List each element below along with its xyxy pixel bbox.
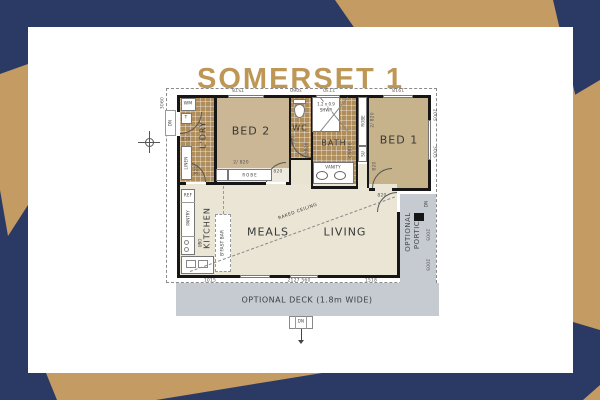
wall-wc-bottom — [289, 158, 313, 160]
dim-left-1: 3060 — [161, 97, 166, 109]
meals-label: MEALS — [247, 226, 289, 239]
portico-dn-label: DN — [424, 201, 429, 207]
bench-divider-2 — [181, 236, 195, 237]
cooktop-burner-2 — [184, 247, 189, 252]
dim-bottom-1: 1015 — [204, 279, 216, 284]
wc-label: WC — [292, 124, 308, 133]
deck-steps-dn-label: DN — [298, 319, 304, 324]
bed2-label: BED 2 — [232, 125, 270, 138]
bench-divider-1 — [181, 202, 195, 203]
washing-machine-label: WM — [184, 102, 193, 107]
cavity-slider-left: CS820 — [305, 142, 310, 158]
crosshair-circle — [145, 138, 154, 147]
deck-step-line-2 — [306, 316, 307, 329]
door-820-bed1: 820 — [373, 161, 378, 170]
bed2-robe-label: ROBE — [242, 173, 257, 178]
wall-left-upper — [177, 95, 180, 112]
deck-step-line-1 — [295, 316, 296, 329]
shower-size-label: 1.2 x 0.9 — [317, 102, 335, 107]
robe-2x820-bed1: 2/ 820 — [371, 112, 376, 128]
bfast-bar-label: B'FAST BAR — [221, 230, 226, 256]
laundry-tub-label: T — [185, 116, 188, 121]
portico-word1: OPTIONAL — [404, 212, 412, 252]
door-820-laundry-kitchen: 820 — [195, 165, 200, 174]
cavity-slider-right: CS820 — [349, 142, 354, 158]
wall-bath-bottom — [311, 186, 358, 189]
cooktop-burner-1 — [184, 240, 189, 245]
shelf-unit-label: SU — [361, 151, 366, 156]
bed1-entry-floor — [358, 164, 367, 186]
dim-right-1: 2005 — [432, 109, 437, 121]
pantry-label: PANTRY — [186, 210, 191, 225]
shower-label: SHWR — [320, 108, 332, 113]
bath-label: BATH — [321, 139, 346, 148]
wall-living-right — [397, 212, 400, 278]
bed2-robe-sw-box — [216, 169, 228, 181]
robe-2x820-bed2: 2/ 820 — [233, 161, 249, 166]
wall-robe-bed1 — [367, 95, 369, 188]
vanity-label: VANITY — [325, 165, 340, 170]
page-background: SOMERSET 1 WM T LINEN — [0, 0, 600, 400]
kitchen-label: KITCHEN — [203, 207, 212, 249]
dim-bottom-2: 2127 560 — [287, 279, 310, 284]
wall-mid-c — [286, 182, 291, 185]
sink-bowl-1 — [186, 260, 196, 268]
wall-mid-a — [177, 182, 186, 185]
window-bed1-top — [383, 95, 413, 98]
dim-top-1: 7578 — [232, 87, 244, 92]
bfast-bar-leadline — [223, 186, 224, 214]
dim-right-3: 2005 — [425, 229, 430, 241]
door-820-living-portico: 820 — [377, 194, 386, 199]
door-820-laundry-entry: 820 — [181, 138, 190, 143]
deck-steps-arrow-line — [301, 329, 302, 340]
dim-top-3: 2730 — [323, 87, 335, 92]
portico-post — [414, 213, 424, 221]
vanity-basin-2 — [334, 171, 346, 180]
dim-top-2: 3060 — [290, 87, 302, 92]
door-820-bed2: 820 — [273, 170, 282, 175]
dim-right-4: 2005 — [425, 259, 430, 271]
bed1-robe-label: ROBE — [361, 115, 366, 126]
entry-dn-label: DN — [168, 120, 173, 126]
wall-bed1-bottom — [392, 188, 431, 191]
laundry-label: L'DRY — [199, 121, 208, 149]
wall-mid-b — [206, 182, 266, 185]
door-820-wc: 820 — [292, 135, 297, 144]
wall-bed1-bottom-hinge — [369, 188, 375, 191]
deck-label: OPTIONAL DECK (1.8m WIDE) — [242, 296, 373, 305]
dim-right-2: 3005 — [432, 146, 437, 158]
window-bed2 — [228, 95, 264, 98]
deck-steps-arrow-head — [298, 340, 304, 344]
dim-bottom-3: 1518 — [365, 279, 377, 284]
living-label: LIVING — [324, 226, 367, 239]
bed1-label: BED 1 — [380, 134, 418, 147]
dim-top-4: 1918 — [392, 87, 404, 92]
wall-left-lower — [177, 136, 180, 278]
window-meals — [240, 275, 270, 278]
linen-label: LINEN — [184, 157, 189, 170]
fridge-label: REF — [184, 193, 192, 198]
vanity-basin-1 — [316, 171, 328, 180]
hall-floor — [289, 158, 311, 184]
